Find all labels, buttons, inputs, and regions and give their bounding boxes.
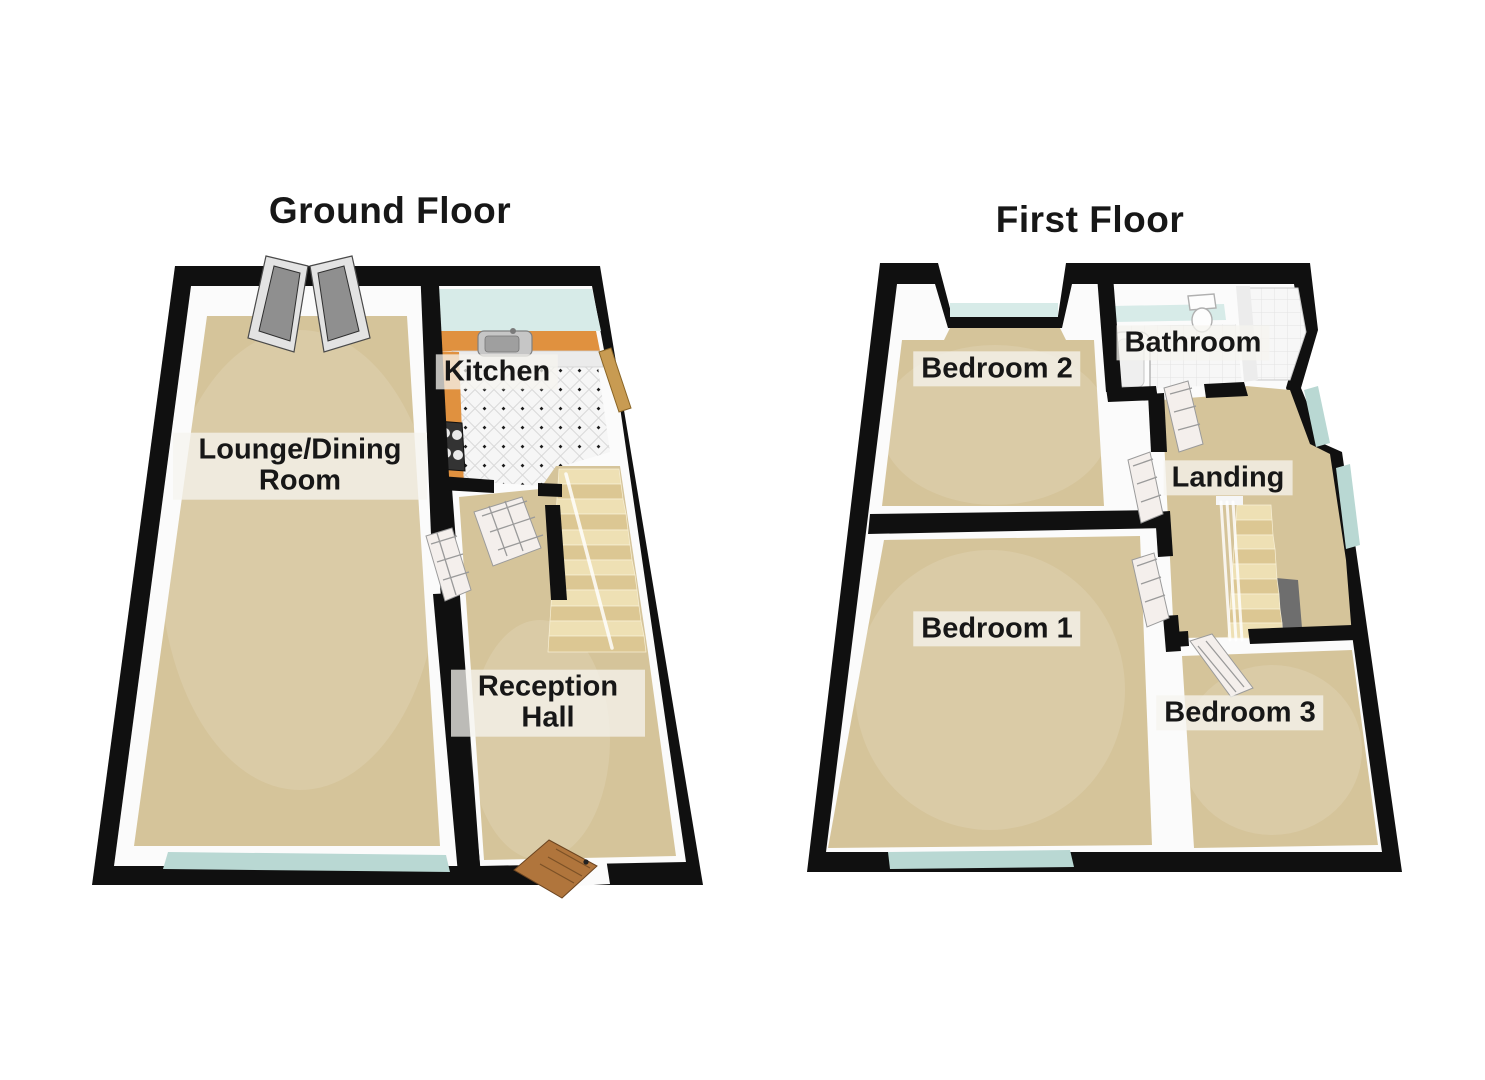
room-label-kitchen: Kitchen bbox=[436, 354, 558, 389]
lounge-window bbox=[163, 852, 450, 872]
bedroom1-window bbox=[888, 850, 1074, 869]
ground-floor-title: Ground Floor bbox=[269, 190, 511, 232]
ground-floor-plan bbox=[92, 256, 703, 898]
room-label-bedroom1: Bedroom 1 bbox=[913, 611, 1080, 646]
first-floor-plan bbox=[807, 263, 1402, 872]
bay-window bbox=[950, 303, 1058, 317]
room-label-bedroom2: Bedroom 2 bbox=[913, 351, 1080, 386]
room-label-bathroom: Bathroom bbox=[1117, 325, 1270, 360]
floorplan-page: Ground Floor First Floor Lounge/Dining R… bbox=[0, 0, 1485, 1080]
room-label-lounge-dining: Lounge/Dining Room bbox=[173, 433, 427, 500]
room-label-reception-hall: Reception Hall bbox=[451, 670, 645, 737]
kitchen-sink bbox=[478, 328, 532, 356]
room-label-landing: Landing bbox=[1164, 460, 1293, 495]
kitchen-window bbox=[437, 289, 601, 331]
first-floor-title: First Floor bbox=[996, 199, 1184, 241]
floorplan-canvas bbox=[0, 0, 1485, 1080]
room-label-bedroom3: Bedroom 3 bbox=[1156, 695, 1323, 730]
